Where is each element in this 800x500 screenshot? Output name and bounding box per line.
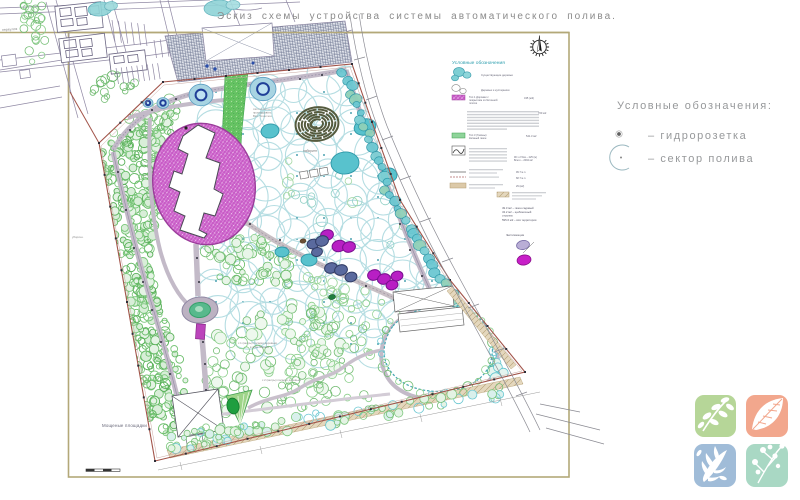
- svg-text:Экспликация: Экспликация: [506, 233, 524, 237]
- svg-text:– гидророзетка: – гидророзетка: [648, 130, 747, 142]
- svg-text:плитки: плитки: [469, 102, 478, 105]
- svg-text:с 2 (метры) посадки деревьев: с 2 (метры) посадки деревьев: [262, 378, 301, 382]
- svg-text:Условные обозначения:: Условные обозначения:: [617, 100, 773, 112]
- svg-text:700 м2: 700 м2: [538, 111, 547, 115]
- svg-text:Условные обозначения: Условные обозначения: [452, 60, 505, 66]
- svg-text:541.3 м2: 541.3 м2: [526, 134, 537, 138]
- svg-text:Существующие деревья: Существующие деревья: [481, 73, 513, 77]
- svg-text:Всего – 2094 м2: Всего – 2094 м2: [514, 159, 533, 162]
- svg-text:435 (м2): 435 (м2): [524, 96, 534, 100]
- svg-text:29 (м2): 29 (м2): [516, 185, 524, 188]
- svg-text:Эскиз схемы устройства системы: Эскиз схемы устройства системы автоматич…: [217, 11, 617, 22]
- svg-text:595.6 м2 – вся территория: 595.6 м2 – вся территория: [502, 218, 537, 222]
- svg-text:Катаный газон: Катаный газон: [469, 136, 487, 140]
- svg-text:лабиринт: лабиринт: [303, 149, 318, 153]
- svg-text:в зоне газонов: в зоне газонов: [250, 345, 269, 349]
- svg-text:уборочн.: уборочн.: [72, 235, 84, 239]
- svg-text:– сектор полива: – сектор полива: [648, 153, 754, 165]
- svg-text:отсыпка: отсыпка: [502, 214, 513, 218]
- svg-text:Вкл. Точки зон: Вкл. Точки зон: [253, 114, 272, 118]
- svg-text:99.7 м.п.: 99.7 м.п.: [516, 171, 526, 174]
- svg-text:68.7 м.п.: 68.7 м.п.: [516, 177, 526, 180]
- svg-text:Деревья и кустарники: Деревья и кустарники: [481, 88, 510, 92]
- svg-text:Мощеные площадки: Мощеные площадки: [102, 423, 147, 428]
